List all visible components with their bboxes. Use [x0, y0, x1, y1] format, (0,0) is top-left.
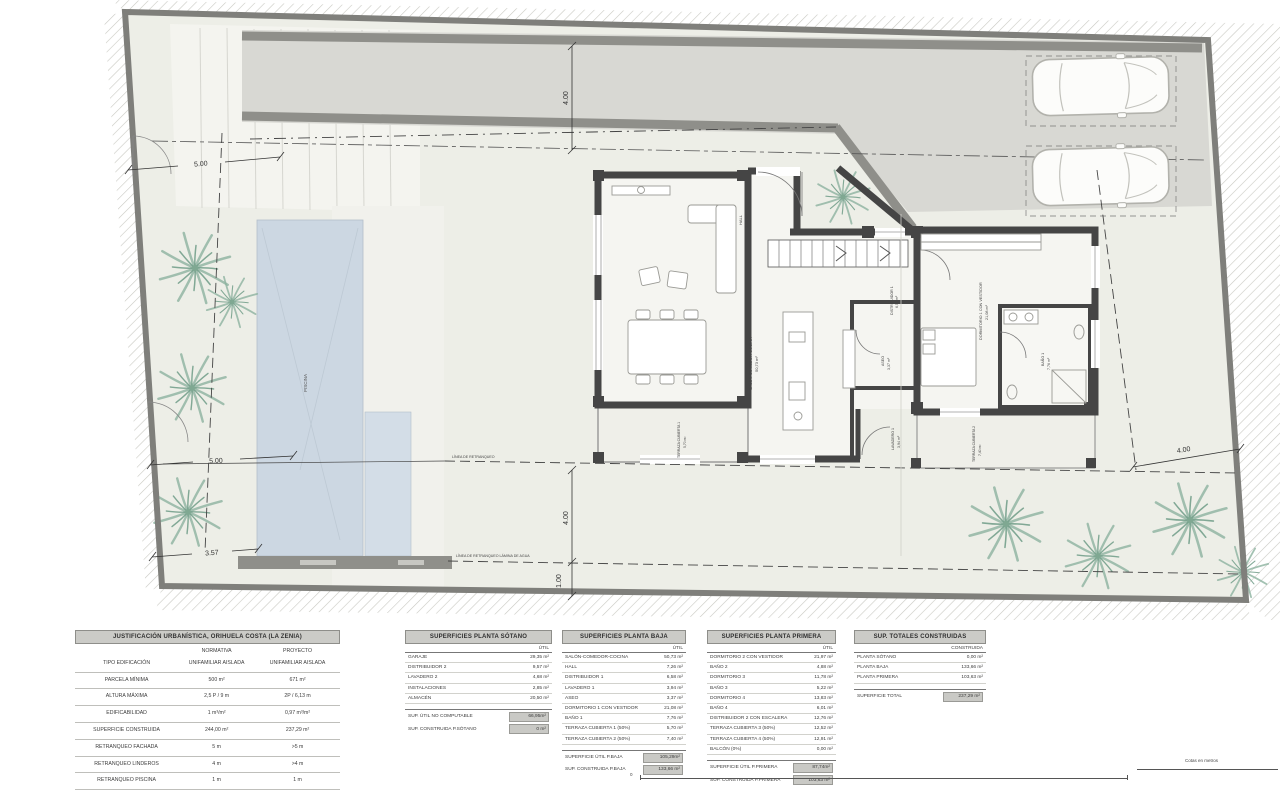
room-label-lavadero: LAVADERO 1 [891, 428, 895, 450]
table-row: DORMITORIO 2 CON VESTIDOR21,97 m² [707, 653, 836, 663]
table-rows: DORMITORIO 2 CON VESTIDOR21,97 m²BAÑO 24… [707, 653, 836, 755]
room-label-distribuidor: DISTRIBUIDOR 1 [890, 286, 894, 315]
table-row: TERRAZA CUBIERTA 2 (50%)7,40 m² [562, 735, 686, 745]
table-row: DORMITORIO 311,78 m² [707, 673, 836, 683]
room-label-hall: HALL [738, 214, 743, 225]
table-row: GARAJE29,35 m² [405, 653, 552, 663]
column-header-normativa: NORMATIVA [176, 648, 257, 656]
table-superficies-planta-baja: SUPERFICIES PLANTA BAJA ÚTIL SALÓN-COMED… [562, 630, 686, 776]
room-area-aseo: 3,37 m² [887, 357, 891, 370]
table-superficies-planta-primera: SUPERFICIES PLANTA PRIMERA ÚTIL DORMITOR… [707, 630, 836, 786]
table-row: BALCÓN (0%)0,00 m² [707, 745, 836, 755]
room-area-distribuidor: 6,58 m² [895, 295, 899, 308]
room-label-aseo: ASEO [881, 356, 885, 366]
scale-bar-tick [1127, 775, 1128, 780]
table-rows: SALÓN-COMEDOR-COCINA50,73 m²HALL7,26 m²D… [562, 653, 686, 745]
table-row: EDIFICABILIDAD1 m³/m²0,97 m³/m² [75, 706, 340, 723]
column-header-util: ÚTIL [707, 644, 836, 653]
column-header-util: ÚTIL [405, 644, 552, 653]
room-label-dormitorio: DORMITORIO 1 CON VESTIDOR [979, 282, 983, 340]
table-row: INSTALACIONES2,85 m² [405, 684, 552, 694]
table-row: SUPERFICIE TOTAL237,29 m² [854, 691, 986, 703]
column-header-construida: CONSTRUIDA [854, 644, 986, 653]
table-row: PLANTA SÓTANO0,00 m² [854, 653, 986, 663]
table-row: DORMITORIO 413,83 m² [707, 694, 836, 704]
architectural-drawing-page: { "plan": { "dim": { "top": "4.00", "lef… [0, 0, 1280, 800]
dimension-label: 5.00 [194, 160, 208, 168]
table-row: DISTRIBUIDOR 2 CON ESCALERA12,76 m² [707, 714, 836, 724]
table-row: RETRANQUEO LINDEROS4 m>4 m [75, 757, 340, 774]
room-area-lavadero: 3,94 m² [897, 435, 901, 448]
pool-label: PISCINA [303, 374, 308, 392]
table-row: SUP. ÚTIL NO COMPUTABLE66,95m² [405, 711, 552, 723]
room-label-terraza2: TERRAZA CUBIERTA 2 [972, 426, 976, 462]
staircase [768, 240, 908, 267]
dimension-label: 5.00 [209, 458, 223, 465]
table-totals: SUP. ÚTIL NO COMPUTABLE66,95m²SUP. CONST… [405, 709, 552, 735]
dimension-label: 3.57 [205, 550, 219, 558]
room-area-dormitorio: 21,08 m² [985, 304, 989, 320]
table-row: ALTURA MÁXIMA2,5 P / 9 m2P / 6,13 m [75, 689, 340, 706]
column-header-util: ÚTIL [562, 644, 686, 653]
setback-line-label: LÍNEA DE RETRANQUEO [452, 455, 495, 459]
table-row: SUPERFICIE ÚTIL P.PRIMERA87,74m² [707, 762, 836, 774]
table-rows: TIPO EDIFICACIÓNUNIFAMILIAR AISLADAUNIFA… [75, 656, 340, 790]
table-justificacion-urbanistica: JUSTIFICACIÓN URBANÍSTICA, ORIHUELA COST… [75, 630, 340, 790]
table-row: SUP. CONSTRUIDA P.PRIMERA103,63 m² [707, 774, 836, 786]
table-row: ASEO3,37 m² [562, 694, 686, 704]
table-row: BAÑO 46,01 m² [707, 704, 836, 714]
table-row: LAVADERO 13,94 m² [562, 684, 686, 694]
scale-bar [640, 778, 1128, 779]
table-title: SUPERFICIES PLANTA PRIMERA [707, 630, 836, 644]
table-row: SUPERFICIE ÚTIL P.BAJA105,29m² [562, 752, 686, 764]
table-title: SUPERFICIES PLANTA BAJA [562, 630, 686, 644]
table-totals: SUPERFICIE ÚTIL P.BAJA105,29m²SUP. CONST… [562, 750, 686, 776]
room-area-bano: 7,76 m² [1047, 357, 1051, 370]
terrace-2 [917, 412, 1095, 468]
table-row: PLANTA PRIMERA103,63 m² [854, 673, 986, 683]
table-title: JUSTIFICACIÓN URBANÍSTICA, ORIHUELA COST… [75, 630, 340, 644]
table-totals: SUPERFICIE ÚTIL P.PRIMERA87,74m²SUP. CON… [707, 760, 836, 786]
room-area-salon: 50,73 m² [754, 356, 759, 372]
table-row: HALL7,26 m² [562, 663, 686, 673]
table-row: SUPERFICIE CONSTRUIDA244,00 m²237,29 m² [75, 723, 340, 740]
column-header-proyecto: PROYECTO [257, 648, 338, 656]
table-row: DORMITORIO 1 CON VESTIDOR21,08 m² [562, 704, 686, 714]
table-row: SUP. CONSTRUIDA P.SÓTANO0 m² [405, 723, 552, 735]
table-title: SUPERFICIES PLANTA SÓTANO [405, 630, 552, 644]
units-note-underline [1137, 769, 1278, 770]
units-note: Cotas en metros [1185, 758, 1218, 763]
table-row: TERRAZA CUBIERTA 1 (50%)5,70 m² [562, 724, 686, 734]
room-area-terraza1: 5,70 m² [683, 436, 687, 448]
table-row: TIPO EDIFICACIÓNUNIFAMILIAR AISLADAUNIFA… [75, 656, 340, 673]
room-label-bano: BAÑO 1 [1040, 353, 1045, 366]
dimension-label: 4.00 [563, 511, 570, 525]
table-superficies-totales: SUP. TOTALES CONSTRUIDAS CONSTRUIDA PLAN… [854, 630, 986, 703]
table-row: TERRAZA CUBIERTA 4 (50%)12,91 m² [707, 735, 836, 745]
room-area-hall: 7,26 m² [744, 214, 749, 228]
table-row: DISTRIBUIDOR 16,58 m² [562, 673, 686, 683]
table-row: RETRANQUEO PISCINA1 m1 m [75, 773, 340, 790]
dimension-label: 1.00 [556, 574, 563, 588]
table-totals: SUPERFICIE TOTAL237,29 m² [854, 689, 986, 703]
table-row: SALÓN-COMEDOR-COCINA50,73 m² [562, 653, 686, 663]
table-rows: PLANTA SÓTANO0,00 m²PLANTA BAJA133,66 m²… [854, 653, 986, 684]
table-row: RETRANQUEO FACHADA5 m>5 m [75, 740, 340, 757]
table-row: ALMACÉN20,50 m² [405, 694, 552, 704]
table-row: PLANTA BAJA133,66 m² [854, 663, 986, 673]
room-area-terraza2: 7,40 m² [978, 444, 982, 456]
table-rows: GARAJE29,35 m²DISTRIBUIDOR 29,57 m²LAVAD… [405, 653, 552, 704]
table-row: LAVADERO 24,68 m² [405, 673, 552, 683]
table-row: TERRAZA CUBIERTA 3 (50%)12,52 m² [707, 724, 836, 734]
table-row: BAÑO 35,22 m² [707, 684, 836, 694]
room-label-terraza1: TERRAZA CUBIERTA 1 [677, 422, 681, 458]
car-top [1032, 52, 1170, 120]
table-row: PARCELA MÍNIMA500 m²671 m² [75, 673, 340, 690]
water-setback-line-label: LÍNEA DE RETRANQUEO LÁMINA DE AGUA [456, 554, 530, 558]
dimension-label: 4.00 [563, 91, 570, 105]
table-row: DISTRIBUIDOR 29,57 m² [405, 663, 552, 673]
table-row: BAÑO 24,88 m² [707, 663, 836, 673]
table-row: BAÑO 17,76 m² [562, 714, 686, 724]
scale-zero-label: 0 [630, 772, 633, 777]
scale-bar-tick [640, 775, 641, 780]
room-label-salon: SALÓN-COMEDOR-COCINA [748, 337, 753, 390]
table-superficies-sotano: SUPERFICIES PLANTA SÓTANO ÚTIL GARAJE29,… [405, 630, 552, 735]
terrace-1 [598, 405, 748, 462]
table-header: NORMATIVA PROYECTO [75, 644, 340, 656]
site-plan-drawing: PISCINA [0, 0, 1280, 620]
table-title: SUP. TOTALES CONSTRUIDAS [854, 630, 986, 644]
table-row: SUP. CONSTRUIDA P.BAJA133,66 m² [562, 764, 686, 776]
